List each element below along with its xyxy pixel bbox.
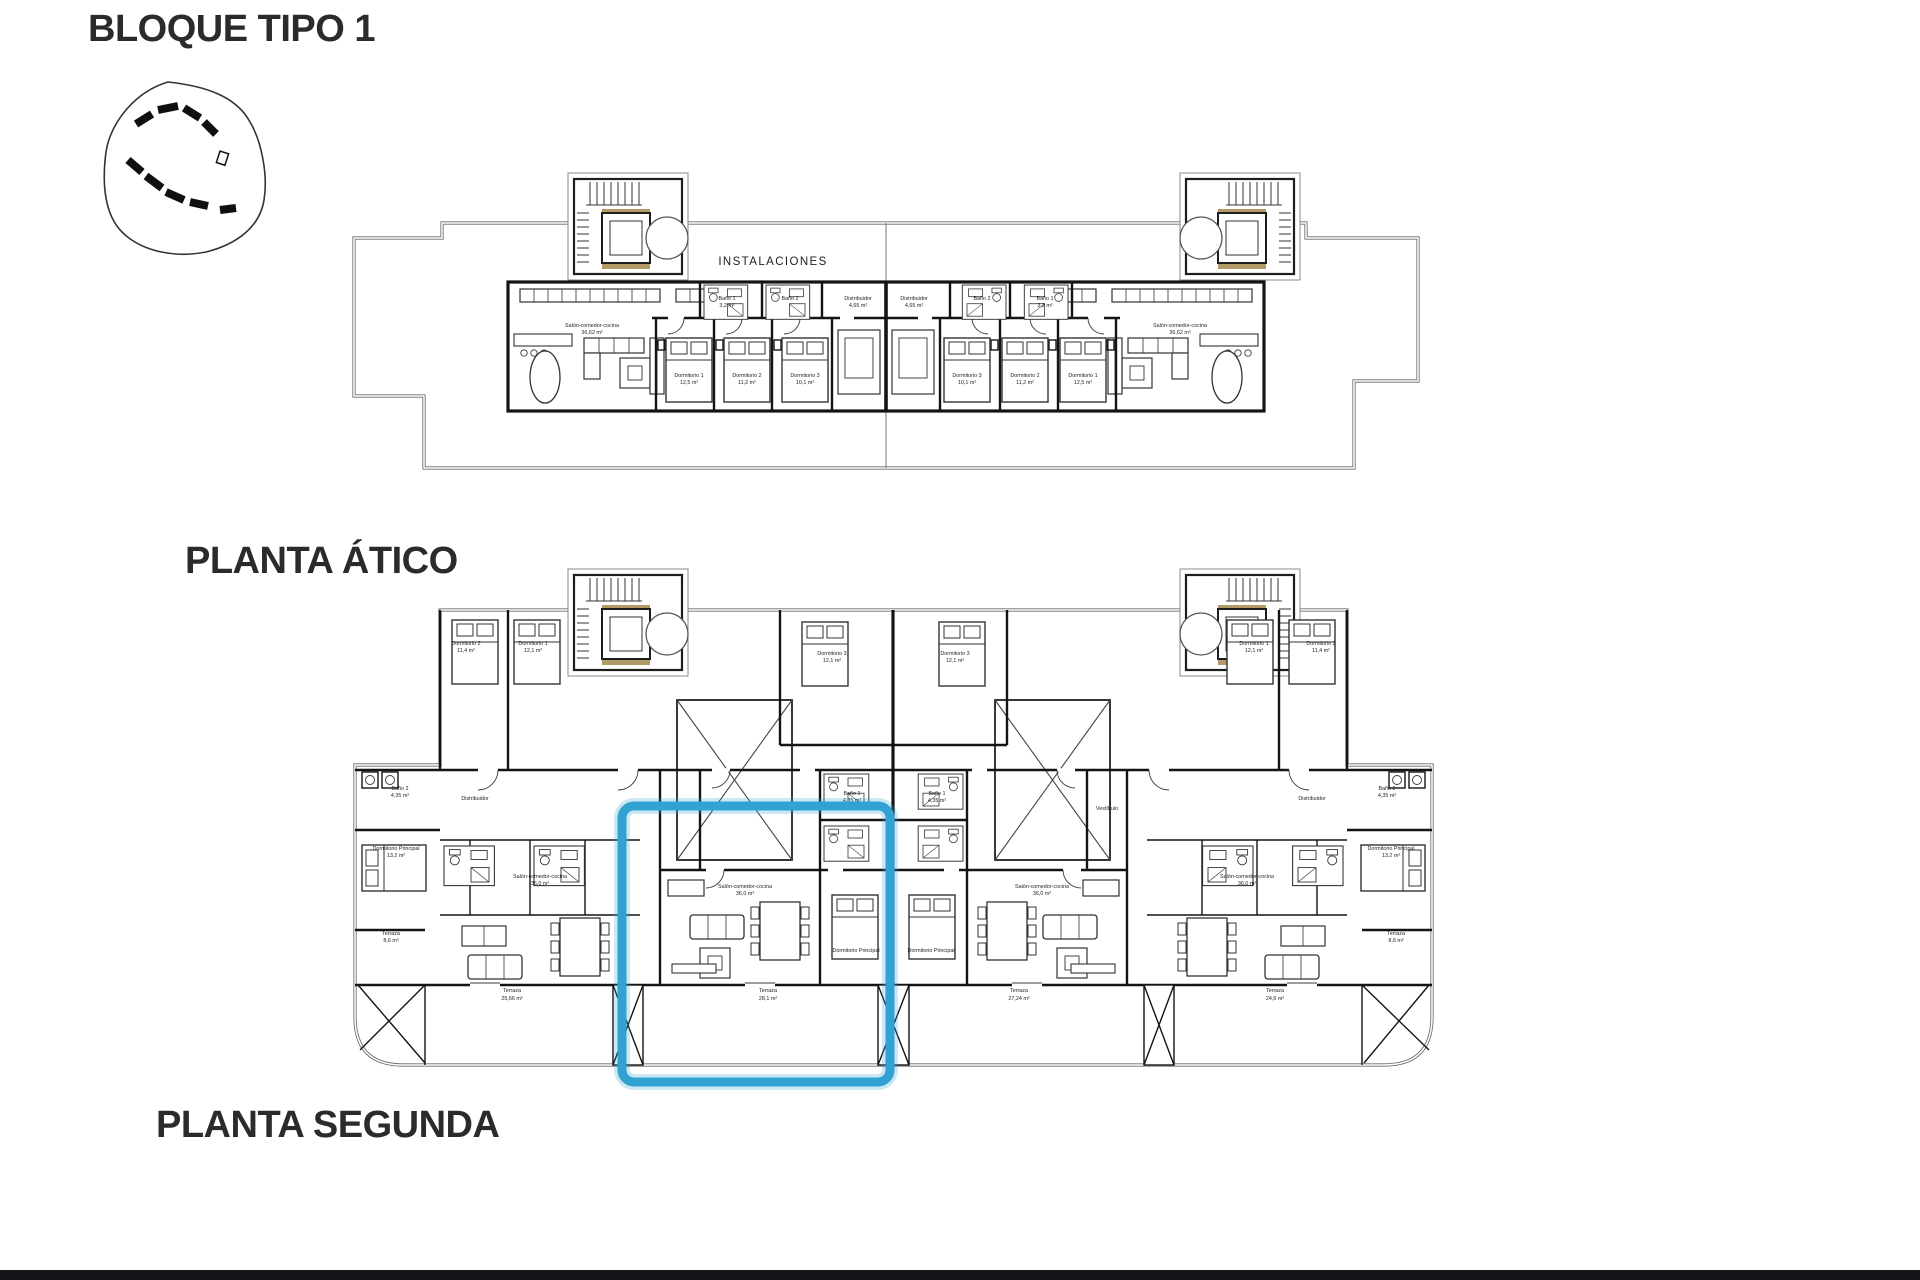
stair-core-left-2 xyxy=(568,569,688,676)
svg-text:25,66 m²: 25,66 m² xyxy=(501,996,522,1002)
svg-text:Terraza: Terraza xyxy=(1266,988,1284,994)
svg-text:Salón-comedor-cocina: Salón-comedor-cocina xyxy=(718,884,772,890)
svg-text:8,6 m²: 8,6 m² xyxy=(1388,938,1403,944)
stair-core-left xyxy=(568,173,688,280)
svg-text:Terraza: Terraza xyxy=(1010,988,1028,994)
svg-text:Dormitorio 1: Dormitorio 1 xyxy=(518,641,547,647)
svg-text:Salón-comedor-cocina: Salón-comedor-cocina xyxy=(513,874,567,880)
svg-text:4,65 m²: 4,65 m² xyxy=(849,303,867,309)
svg-text:Baño 2: Baño 2 xyxy=(781,296,798,302)
svg-text:36,0 m²: 36,0 m² xyxy=(736,891,754,897)
svg-text:13,2 m²: 13,2 m² xyxy=(1382,853,1400,859)
svg-text:Dormitorio 1: Dormitorio 1 xyxy=(1239,641,1268,647)
svg-text:4,65 m²: 4,65 m² xyxy=(905,303,923,309)
svg-text:8,6 m²: 8,6 m² xyxy=(383,938,398,944)
svg-text:Dormitorio 1: Dormitorio 1 xyxy=(674,373,703,379)
svg-text:Distribuidor: Distribuidor xyxy=(1298,796,1325,802)
segunda-floor-label: PLANTA SEGUNDA xyxy=(156,1104,499,1147)
svg-text:36,0 m²: 36,0 m² xyxy=(1033,891,1051,897)
svg-text:11,2 m²: 11,2 m² xyxy=(738,380,756,386)
svg-text:Dormitorio 3: Dormitorio 3 xyxy=(817,651,846,657)
floorplan-sheet: BLOQUE TIPO 1 xyxy=(0,0,1920,1280)
svg-text:Terraza: Terraza xyxy=(382,931,400,937)
svg-text:4,35 m²: 4,35 m² xyxy=(928,798,946,804)
svg-text:12,1 m²: 12,1 m² xyxy=(946,658,964,664)
svg-text:Dormitorio 3: Dormitorio 3 xyxy=(790,373,819,379)
svg-text:Vestíbulo: Vestíbulo xyxy=(1096,806,1118,812)
svg-text:Baño 1: Baño 1 xyxy=(718,296,735,302)
svg-text:Dormitorio Principal: Dormitorio Principal xyxy=(907,948,954,954)
svg-text:11,4 m²: 11,4 m² xyxy=(1312,648,1330,654)
svg-text:3,2 m²: 3,2 m² xyxy=(1037,303,1052,309)
svg-text:Dormitorio 2: Dormitorio 2 xyxy=(732,373,761,379)
svg-text:4,35 m²: 4,35 m² xyxy=(391,793,409,799)
svg-text:13,2 m²: 13,2 m² xyxy=(387,853,405,859)
svg-text:27,24 m²: 27,24 m² xyxy=(1008,996,1029,1002)
svg-text:Baño 2: Baño 2 xyxy=(391,786,408,792)
svg-text:Distribuidor: Distribuidor xyxy=(900,296,927,302)
stair-core-right xyxy=(1180,173,1300,280)
svg-text:12,1 m²: 12,1 m² xyxy=(823,658,841,664)
svg-text:Dormitorio 1: Dormitorio 1 xyxy=(1068,373,1097,379)
svg-text:Distribuidor: Distribuidor xyxy=(461,796,488,802)
svg-text:Dormitorio Principal: Dormitorio Principal xyxy=(1367,846,1414,852)
svg-text:Dormitorio 2: Dormitorio 2 xyxy=(1010,373,1039,379)
svg-text:36,0 m²: 36,0 m² xyxy=(1238,881,1256,887)
svg-text:Baño 2: Baño 2 xyxy=(973,296,990,302)
svg-text:Salón-comedor-cocina: Salón-comedor-cocina xyxy=(1015,884,1069,890)
svg-text:Dormitorio 3: Dormitorio 3 xyxy=(940,651,969,657)
svg-text:24,6 m²: 24,6 m² xyxy=(1266,996,1284,1002)
svg-text:11,2 m²: 11,2 m² xyxy=(1016,380,1034,386)
svg-text:28,1 m²: 28,1 m² xyxy=(759,996,777,1002)
svg-text:Dormitorio 3: Dormitorio 3 xyxy=(952,373,981,379)
svg-text:Terraza: Terraza xyxy=(759,988,777,994)
atico-plan: INSTALACIONES Salón-comedor-cocina 36,62… xyxy=(354,173,1418,468)
svg-text:Distribuidor: Distribuidor xyxy=(844,296,871,302)
site-location-sketch xyxy=(104,82,265,254)
svg-text:36,62 m²: 36,62 m² xyxy=(1169,330,1190,336)
svg-text:Salón-comedor-cocina: Salón-comedor-cocina xyxy=(565,323,619,329)
svg-text:Salón-comedor-cocina: Salón-comedor-cocina xyxy=(1220,874,1274,880)
svg-text:Dormitorio Principal: Dormitorio Principal xyxy=(832,948,879,954)
svg-text:Baño 2: Baño 2 xyxy=(1378,786,1395,792)
svg-text:Baño 1: Baño 1 xyxy=(928,791,945,797)
svg-text:Terraza: Terraza xyxy=(503,988,521,994)
svg-text:4,35 m²: 4,35 m² xyxy=(1378,793,1396,799)
svg-text:36,0 m²: 36,0 m² xyxy=(531,881,549,887)
bottom-edge-bar xyxy=(0,1270,1920,1280)
svg-text:Dormitorio Principal: Dormitorio Principal xyxy=(372,846,419,852)
svg-text:Baño 1: Baño 1 xyxy=(843,791,860,797)
svg-text:Terraza: Terraza xyxy=(1387,931,1405,937)
svg-text:Baño 1: Baño 1 xyxy=(1036,296,1053,302)
svg-text:Dormitorio 2: Dormitorio 2 xyxy=(1306,641,1335,647)
sheet-title: BLOQUE TIPO 1 xyxy=(88,8,375,51)
svg-text:12,1 m²: 12,1 m² xyxy=(524,648,542,654)
svg-text:12,1 m²: 12,1 m² xyxy=(1245,648,1263,654)
svg-text:Dormitorio 2: Dormitorio 2 xyxy=(451,641,480,647)
svg-text:Salón-comedor-cocina: Salón-comedor-cocina xyxy=(1153,323,1207,329)
svg-text:11,4 m²: 11,4 m² xyxy=(457,648,475,654)
svg-text:36,62 m²: 36,62 m² xyxy=(581,330,602,336)
svg-text:12,5 m²: 12,5 m² xyxy=(680,380,698,386)
floorplan-drawing: INSTALACIONES Salón-comedor-cocina 36,62… xyxy=(0,0,1920,1280)
svg-text:10,1 m²: 10,1 m² xyxy=(958,380,976,386)
segunda-plan: Dormitorio 2 11,4 m² Dormitorio 1 12,1 m… xyxy=(355,569,1432,1082)
elevator-shaft-right xyxy=(995,700,1110,860)
atico-floor-label: PLANTA ÁTICO xyxy=(185,540,458,583)
svg-text:3,2 m²: 3,2 m² xyxy=(719,303,734,309)
instalaciones-label: INSTALACIONES xyxy=(718,256,827,268)
svg-text:12,5 m²: 12,5 m² xyxy=(1074,380,1092,386)
elevator-shaft-left xyxy=(677,700,792,860)
svg-text:10,1 m²: 10,1 m² xyxy=(796,380,814,386)
